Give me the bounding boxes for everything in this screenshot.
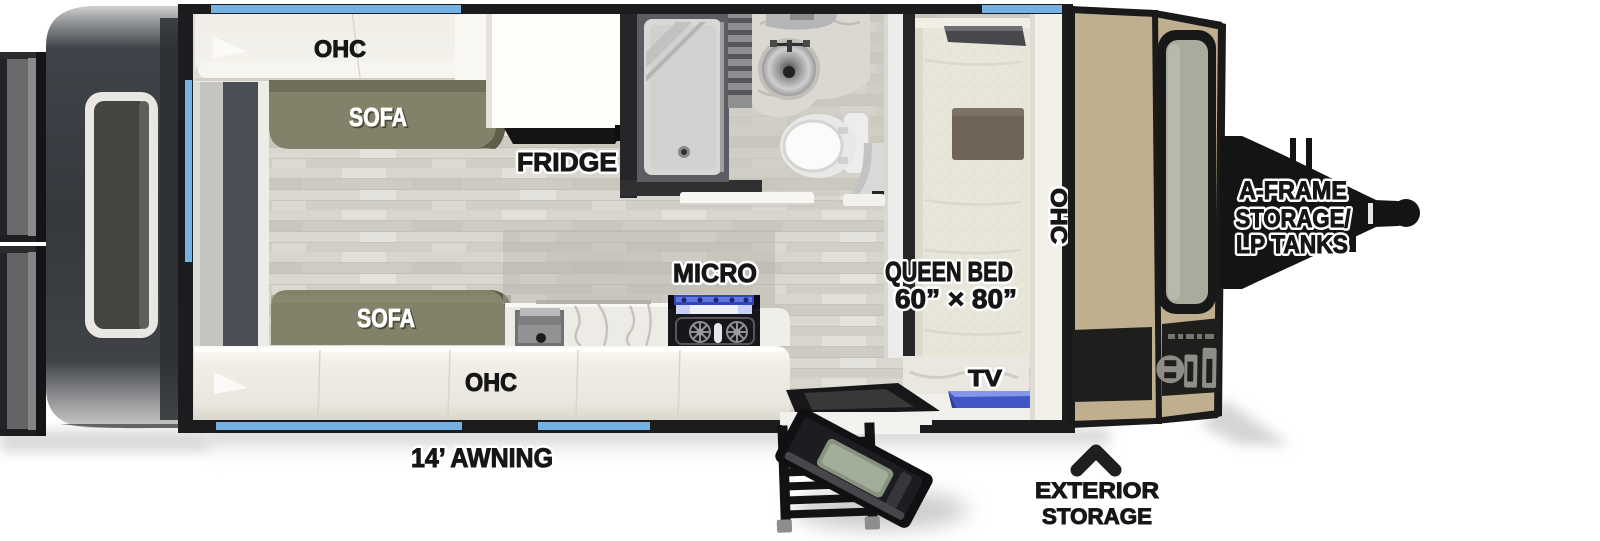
svg-text:EXTERIOR: EXTERIOR bbox=[1035, 478, 1159, 503]
svg-text:STORAGE/: STORAGE/ bbox=[1236, 205, 1351, 233]
svg-text:MICRO: MICRO bbox=[673, 258, 757, 288]
svg-text:A-FRAME: A-FRAME bbox=[1239, 177, 1347, 205]
svg-text:FRIDGE: FRIDGE bbox=[517, 147, 617, 177]
svg-text:STORAGE: STORAGE bbox=[1042, 504, 1152, 529]
svg-text:OHC: OHC bbox=[314, 36, 366, 63]
svg-text:14’ AWNING: 14’ AWNING bbox=[411, 443, 553, 473]
svg-text:SOFA: SOFA bbox=[349, 102, 407, 132]
svg-text:60” × 80”: 60” × 80” bbox=[895, 284, 1017, 314]
svg-text:QUEEN BED: QUEEN BED bbox=[885, 256, 1013, 287]
svg-text:OHC: OHC bbox=[465, 369, 517, 397]
svg-text:LP TANKS: LP TANKS bbox=[1236, 231, 1348, 259]
svg-text:TV: TV bbox=[968, 365, 1003, 391]
svg-text:SOFA: SOFA bbox=[357, 303, 415, 333]
